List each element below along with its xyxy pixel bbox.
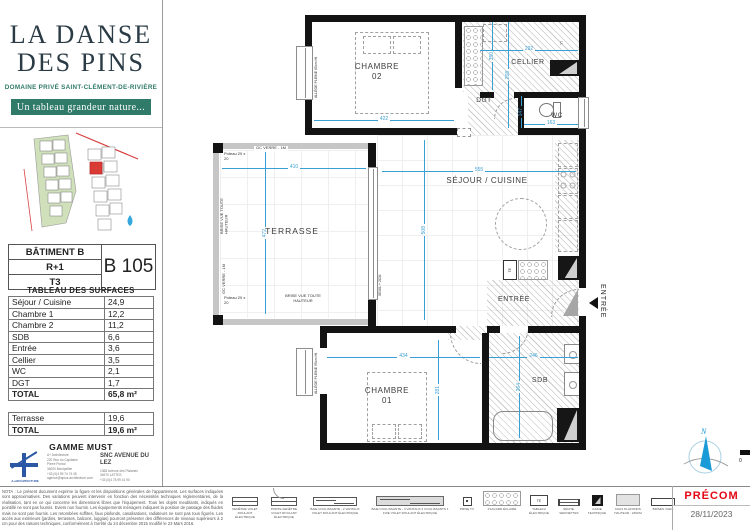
false-ceiling-icon (616, 491, 640, 506)
dim-terrasse-width: 410 (222, 165, 366, 171)
unit-floor: R+1 (9, 260, 101, 275)
footer-divider (0, 486, 750, 487)
footer-divider (673, 505, 750, 506)
table-row: SDB6,6 (9, 331, 154, 343)
plan-date: 28/11/2023 (673, 509, 750, 519)
lighted-closet-icon (483, 491, 521, 506)
floor-plan: TE ENTRÉE CHAM (162, 0, 750, 486)
wall (320, 326, 368, 333)
table-total-row: TOTAL19,6 m² (9, 424, 154, 436)
dim-wc-depth: 147 (518, 96, 524, 128)
wall (528, 326, 586, 333)
surfaces-table: Séjour / Cuisine24,9 Chambre 112,2 Chamb… (8, 296, 154, 401)
annotation-brise-vue-bottom: BRISE VUE TOUTE HAUTEUR (280, 294, 326, 303)
sliding-bay-2-icon (313, 491, 357, 506)
legend-item: GAINE TECHNIQUE (586, 491, 608, 516)
dim-cellier-depth: 350 (489, 22, 495, 90)
brand-title-line2: DES PINS (0, 50, 162, 76)
room-label-chambre02: CHAMBRE02 (342, 62, 412, 83)
technical-duct-icon (558, 256, 579, 280)
kitchen-unit (558, 143, 578, 167)
unit-building: BÂTIMENT B (9, 245, 101, 260)
table-total-row: TOTAL65,8 m² (9, 389, 154, 401)
wall (579, 135, 586, 288)
room-label-sdb: SDB (525, 376, 555, 385)
table-row: Chambre 112,2 (9, 308, 154, 320)
annotation-allege-chambre01: ALLÈGE PLEINE 95cm Ht (314, 350, 318, 394)
window-chambre01 (296, 348, 313, 396)
table-row: Terrasse19,6 (9, 413, 154, 425)
room-label-dgt: DGT (470, 97, 498, 105)
table-row: Chambre 211,2 (9, 320, 154, 332)
entrance-door-leaf (563, 289, 578, 316)
pillow (393, 36, 421, 54)
post (213, 143, 223, 153)
legend: FENÊTRE VOLET ROULANT ÉLECTRIQUE PORTE-F… (228, 491, 666, 520)
wall (455, 22, 462, 88)
brand-title-line1: LA DANSE (0, 22, 162, 48)
wall (305, 15, 312, 46)
wall (518, 128, 586, 135)
wall (487, 326, 500, 333)
pillow (398, 424, 422, 439)
precom-badge: PRÉCOM (673, 490, 750, 502)
legend-item: BAIE COULISSANTE - 2 VANTAUX VOLET ROULA… (306, 491, 364, 516)
placard-chambre02 (464, 26, 483, 86)
brand-tagline: Un tableau grandeur nature... (11, 99, 151, 115)
table-row: Cellier3,5 (9, 354, 154, 366)
room-label-sejour: SÉJOUR / CUISINE (412, 176, 562, 186)
legend-item: PRISE TV (456, 491, 478, 512)
wall (305, 128, 468, 135)
wall (579, 333, 586, 450)
wall (305, 15, 586, 22)
tv-socket-icon (463, 491, 472, 506)
compass-north-label: N (700, 427, 707, 436)
appliance-cellier (483, 24, 507, 42)
brand-subtitle: DOMAINE PRIVÉ SAINT-CLÉMENT-DE-RIVIÈRE (0, 84, 162, 91)
unit-table: BÂTIMENT B B 105 R+1 T3 (8, 244, 156, 290)
pillow (363, 36, 391, 54)
wall (368, 143, 376, 167)
wall (320, 443, 586, 450)
post (213, 315, 223, 325)
nota-text: NOTA : Le présent document exprime la fi… (2, 489, 223, 527)
pillow (372, 424, 396, 439)
legend-item: FAUX PLAFONDS HAUTEUR : 230CM (612, 491, 644, 516)
dim-sdb-depth: 264 (516, 336, 522, 438)
promoter-block: SNC AVENUE DU LEZ 1368 Avenue des Platan… (100, 453, 158, 483)
entrance-arrow-icon (589, 297, 598, 309)
wall (514, 92, 586, 98)
dim-sdb-width: 246 (489, 354, 578, 360)
legend-item: BAIE COULISSANTE - 3 VANTAUX 2 COULISSAN… (368, 491, 452, 516)
legend-item: PORTE-FENÊTRE VOLET ROULANT ÉLECTRIQUE (266, 491, 302, 520)
dishwasher (558, 220, 578, 252)
wall (320, 333, 327, 348)
electrical-panel-icon: TE (530, 491, 548, 506)
wall (482, 333, 489, 443)
promoter-name: SNC AVENUE DU LEZ (100, 453, 158, 467)
dim-chambre02-width: 422 (314, 117, 454, 123)
water-drop-icon (128, 215, 133, 226)
gamme-label: GAMME MUST (0, 442, 162, 452)
architect-logo-label: A+ARCHITECTURE (8, 479, 42, 483)
scale-bar: 1:50 0 1 2M (740, 436, 750, 468)
compass-icon: N (676, 424, 734, 484)
window-wc (578, 97, 589, 129)
annotation-poteau-top: Poteau 20 x 20 (224, 152, 250, 161)
door-window-icon (271, 491, 297, 506)
architect-address: A+ Architecture 220 Rue du Capitaine Pie… (47, 453, 97, 481)
window-icon (232, 491, 258, 506)
room-label-chambre01: CHAMBRE01 (352, 386, 422, 407)
sliding-bay-3-icon (376, 491, 444, 506)
legend-item: TETABLEAU ÉLECTRIQUE (526, 491, 552, 516)
unit-code: B 105 (101, 245, 155, 289)
highlighted-unit (90, 162, 102, 174)
annotation-seuil: SEUIL + 2CM (378, 240, 382, 296)
dim-chambre01-width: 434 (327, 354, 480, 360)
wall (368, 326, 456, 333)
technical-duct-icon (557, 408, 579, 442)
dim-sejour-depth: 508 (421, 140, 427, 320)
technical-duct-icon (592, 491, 603, 506)
pocket-door-chambre02 (457, 128, 471, 137)
table-row: Entrée3,6 (9, 343, 154, 355)
window-chambre02 (296, 46, 313, 100)
legend-item: FENÊTRE VOLET ROULANT ÉLECTRIQUE (228, 491, 262, 520)
wall (579, 15, 586, 97)
annotation-poteau-bottom: Poteau 20 x 20 (224, 296, 250, 305)
table-row: WC2,1 (9, 366, 154, 378)
washbasin (564, 372, 580, 396)
wall (368, 298, 376, 326)
dim-wc-width: 163 (524, 121, 578, 127)
glass-guard-top (213, 143, 369, 149)
dim-chambre01-depth: 281 (435, 340, 441, 440)
dim-sejour-width: 555 (382, 168, 576, 174)
surfaces-title: TABLEAU DES SURFACES (0, 286, 162, 295)
sidebar: LA DANSE DES PINS DOMAINE PRIVÉ SAINT-CL… (0, 0, 162, 486)
annotation-gc-verre-left: GC VERRE - 1M (222, 242, 227, 294)
wall (320, 394, 327, 450)
sliding-bay-terrasse (368, 167, 378, 300)
entrance-direction-label: ENTRÉE (599, 284, 606, 318)
dim-chambre02-depth: 268 (505, 22, 511, 128)
placard-entree (518, 260, 548, 280)
dim-terrasse-depth: 472 (262, 152, 268, 314)
room-label-entree: ENTRÉE (484, 295, 544, 304)
electrical-panel-icon: TE (503, 260, 517, 280)
bathtub (493, 411, 553, 441)
annotation-allege-chambre02: ALLÈGE PLEINE 65cm Ht (314, 50, 318, 98)
legend-item: PLACARD ÉCLAIRÉ (482, 491, 522, 512)
kitchen-sink (558, 195, 578, 219)
annotation-gc-verre-top: GC VERRE - 1M (254, 146, 288, 151)
table-row: DGT1,7 (9, 377, 154, 389)
towel-dryer-icon (558, 491, 580, 506)
table-sejour (495, 198, 547, 250)
annotation-brise-vue-left: BRISE VUE TOUTE HAUTEUR (220, 178, 232, 234)
table-row: Séjour / Cuisine24,9 (9, 297, 154, 309)
legend-item: SÈCHE-SERVIETTES (556, 491, 582, 516)
terrace-table: Terrasse19,6 TOTAL19,6 m² (8, 412, 154, 436)
glass-guard-left (213, 143, 219, 325)
site-plan-thumbnail (22, 131, 140, 239)
divider (0, 127, 162, 128)
glass-guard-bottom (213, 319, 375, 325)
